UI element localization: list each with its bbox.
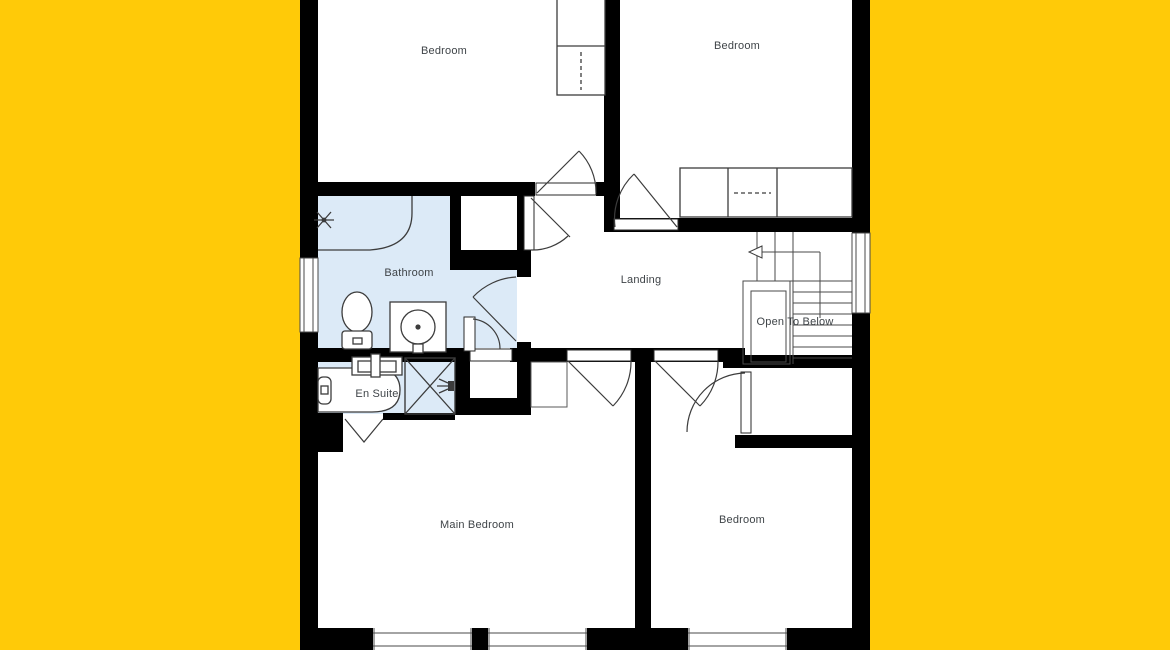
en-suite-vanity-icon bbox=[352, 354, 402, 377]
sink-vanity-icon bbox=[390, 302, 446, 353]
window-stairs-right bbox=[852, 233, 870, 313]
room-label-open-to-below: Open To Below bbox=[756, 316, 833, 328]
room-label-bathroom: Bathroom bbox=[384, 267, 433, 279]
room-label-main-bedroom: Main Bedroom bbox=[440, 519, 514, 531]
room-label-en-suite: En Suite bbox=[355, 388, 398, 400]
floor-plan-page: Bedroom Bedroom Bathroom Landing Open To… bbox=[0, 0, 1170, 650]
window-bedroom-bottom-right bbox=[688, 628, 787, 650]
wardrobe-top-left-bedroom bbox=[557, 0, 605, 95]
room-label-landing: Landing bbox=[621, 274, 662, 286]
outer-wall-right bbox=[852, 0, 870, 650]
wardrobe-main-bedroom bbox=[531, 362, 567, 407]
toilet-icon bbox=[342, 292, 372, 349]
room-label-bedroom-top-left: Bedroom bbox=[421, 45, 467, 57]
window-main-bedroom-2 bbox=[488, 628, 587, 650]
room-label-bedroom-top-right: Bedroom bbox=[714, 40, 760, 52]
window-bathroom-left bbox=[300, 258, 318, 332]
window-main-bedroom-1 bbox=[373, 628, 472, 650]
wardrobe-top-right-bedroom bbox=[680, 168, 852, 217]
room-label-bedroom-bottom-right: Bedroom bbox=[719, 514, 765, 526]
floor-plan-drawing bbox=[0, 0, 1170, 650]
